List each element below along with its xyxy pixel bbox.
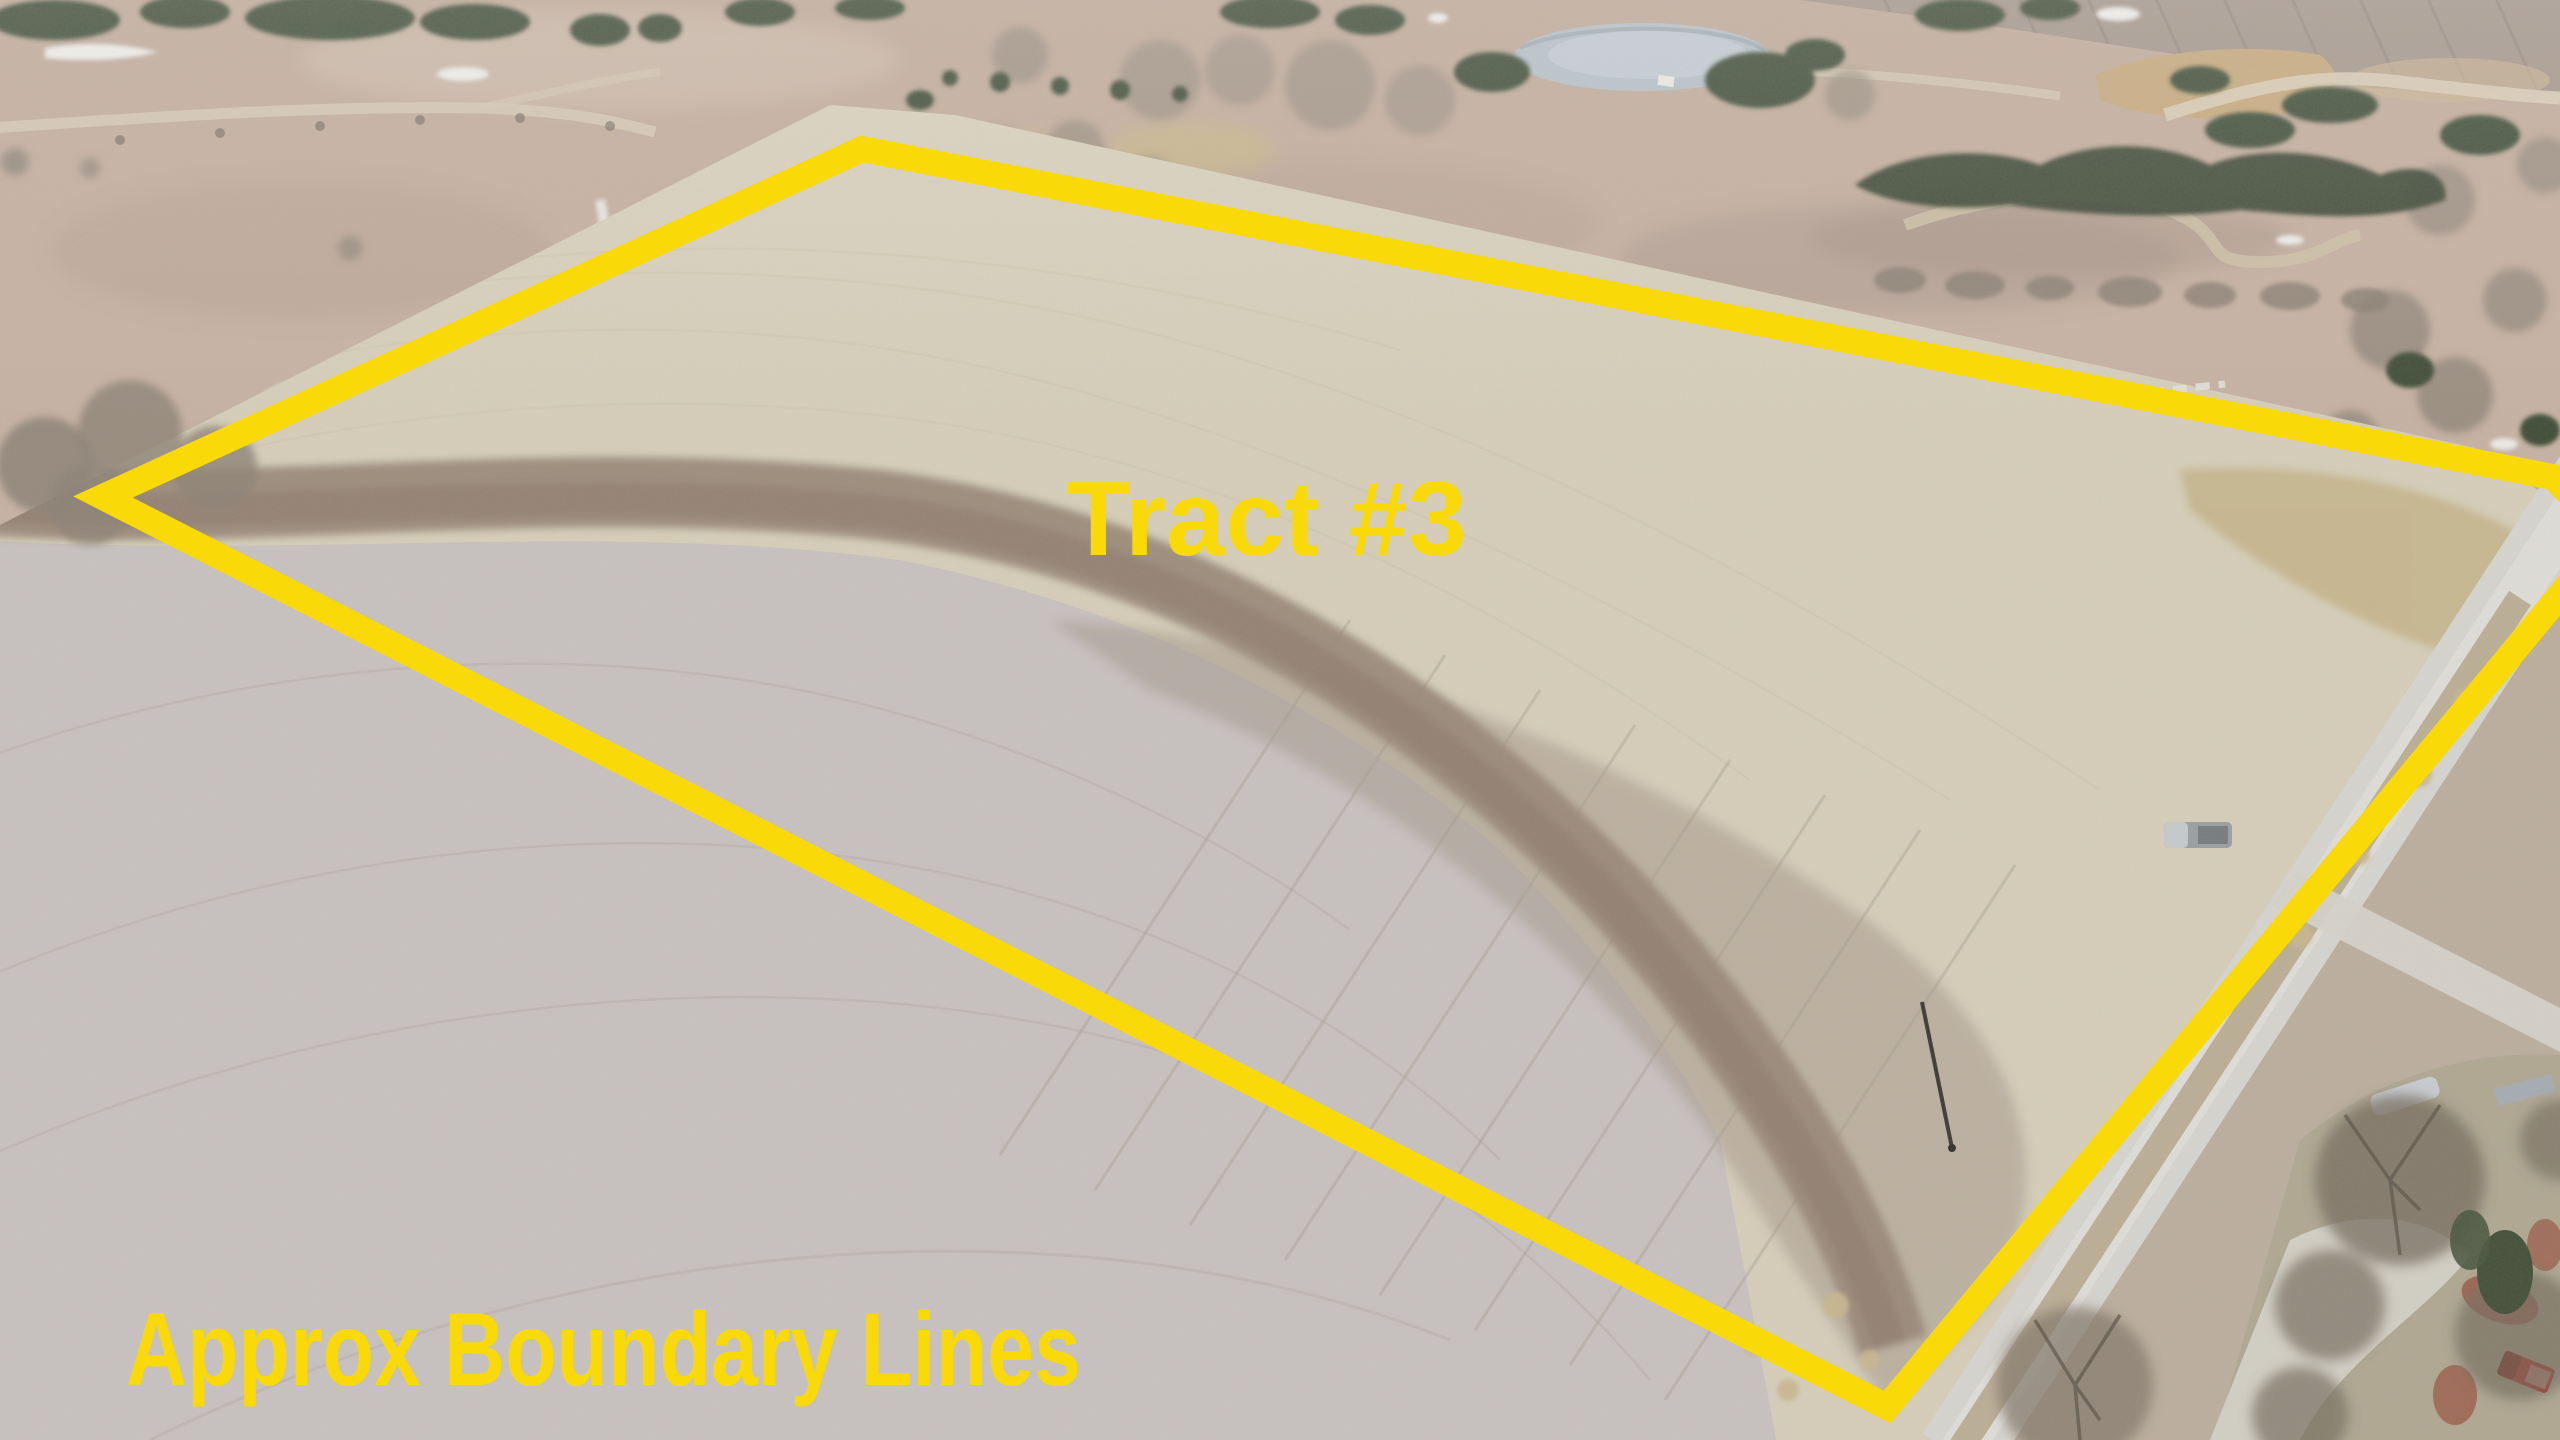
photo-canvas — [0, 0, 2560, 1440]
tract-label: Tract #3 — [1066, 466, 1467, 572]
aerial-photo: Tract #3 Approx Boundary Lines — [0, 0, 2560, 1440]
boundary-caption: Approx Boundary Lines — [126, 1298, 1081, 1402]
